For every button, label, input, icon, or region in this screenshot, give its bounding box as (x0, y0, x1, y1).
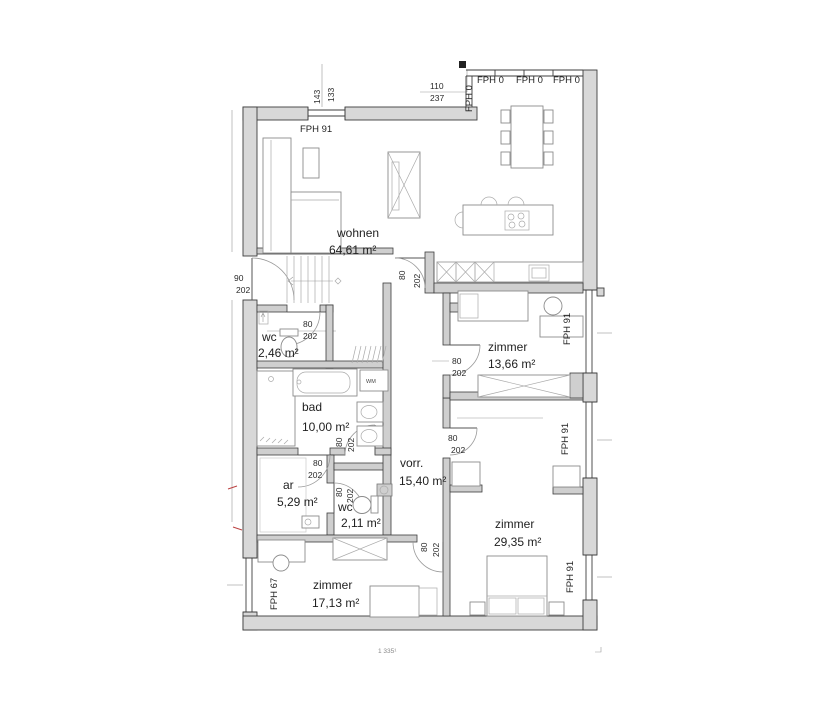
corner-marker (459, 61, 466, 68)
radiator (352, 346, 386, 363)
wall-right-upper (583, 70, 597, 290)
room-area-wc2: 2,11 m² (341, 516, 381, 530)
dresser (553, 466, 580, 487)
toilet-tank (371, 496, 378, 513)
dim-bedroom1-door-w: 80 (452, 356, 462, 366)
nightstand (470, 602, 485, 615)
toilet (353, 497, 371, 514)
plan-number: 1 335¹ (378, 648, 397, 655)
floor-plan: WM (0, 0, 835, 720)
wall-right-pier2 (583, 478, 597, 555)
dim-top-window-w: 143 (312, 90, 322, 104)
bar-stool (455, 212, 463, 228)
dresser (452, 462, 480, 486)
dim-storage-door-h: 202 (308, 470, 322, 480)
window-right-1 (583, 290, 597, 373)
kitchen-island (463, 205, 553, 235)
windows-glazing (243, 70, 597, 612)
entry-door (252, 258, 294, 300)
window-left-fph67 (243, 558, 257, 612)
dim-corner-glass-w: 110 (430, 81, 444, 91)
chair (544, 152, 553, 165)
chair (544, 110, 553, 123)
chair (501, 131, 510, 144)
room-name-ar: ar (283, 478, 294, 492)
toilet-tank (280, 329, 298, 336)
window-label-fph0-1: FPH 0 (477, 75, 504, 86)
room-area-zimmer1: 13,66 m² (488, 357, 535, 371)
dim-wc2-door-h: 202 (345, 489, 355, 503)
dim-storage-door-w: 80 (313, 458, 323, 468)
wall-bottom (243, 616, 597, 630)
bar-stool (508, 197, 524, 205)
room-name-zimmer3: zimmer (313, 578, 352, 592)
dim-bedroom3-door-w: 80 (419, 542, 429, 552)
wall-top-mid (345, 107, 477, 120)
room-name-wc1: wc (261, 330, 277, 344)
bar-stool (481, 197, 497, 205)
dim-bedroom2-door-w: 80 (448, 433, 458, 443)
bed-single (370, 586, 419, 617)
room-area-wohnen: 64,61 m² (329, 243, 376, 257)
pillow (419, 588, 437, 615)
wall-right-lower (583, 600, 597, 630)
room-area-vorr: 15,40 m² (399, 474, 446, 488)
dim-entry-door-w: 90 (234, 273, 244, 283)
window-label-right-3: FPH 91 (565, 561, 576, 593)
wall-right-pier1 (583, 373, 597, 402)
sofa (263, 138, 291, 253)
room-area-zimmer2: 29,35 m² (494, 535, 541, 549)
window-label-top: FPH 91 (300, 124, 332, 135)
window-label-left: FPH 67 (269, 578, 280, 610)
small-fixture (302, 516, 319, 528)
room-area-wc1: 2,46 m² (258, 346, 299, 360)
dim-living-door-h: 202 (412, 274, 422, 288)
dim-corner-glass-h: 237 (430, 93, 444, 103)
window-label-right-2: FPH 91 (560, 423, 571, 455)
room-name-wohnen: wohnen (336, 226, 379, 240)
room-name-zimmer2: zimmer (495, 517, 534, 531)
wall-left-mid (243, 300, 257, 558)
bed-double (487, 556, 547, 616)
dim-wc1-door-w: 80 (303, 319, 313, 329)
fixtures-bath: WM (257, 369, 388, 446)
window-right-2 (583, 402, 597, 478)
wall-right-bump (597, 288, 604, 296)
window-top-fph91 (308, 107, 345, 120)
chair-round (273, 555, 289, 571)
nightstand (549, 602, 564, 615)
window-label-fph0-2: FPH 0 (516, 75, 543, 86)
dining-table (511, 106, 543, 168)
dim-bedroom2-door-h: 202 (451, 445, 465, 455)
window-label-fph0-rot: FPH 0 (464, 85, 475, 112)
dim-bath-door-w: 80 (334, 437, 344, 447)
entry-wardrobe (287, 256, 341, 303)
dim-living-door-w: 80 (397, 270, 407, 280)
room-name-zimmer1: zimmer (488, 340, 527, 354)
wall-left-upper (243, 107, 257, 256)
chair (501, 110, 510, 123)
window-label-fph0-3: FPH 0 (553, 75, 580, 86)
window-right-3 (583, 555, 597, 600)
vent-shaft (259, 311, 268, 324)
room-area-bad: 10,00 m² (302, 420, 349, 434)
bed-single (458, 291, 528, 321)
dim-wc2-door-w: 80 (334, 487, 344, 497)
dim-entry-door-h: 202 (236, 285, 250, 295)
bathtub (293, 369, 357, 396)
side-table (303, 148, 319, 178)
chair (544, 131, 553, 144)
room-name-vorr: vorr. (400, 456, 423, 470)
dim-bedroom1-door-h: 202 (452, 368, 466, 378)
room-area-ar: 5,29 m² (277, 495, 318, 509)
room-name-bad: bad (302, 400, 322, 414)
dim-wc1-door-h: 202 (303, 331, 317, 341)
dim-bath-door-h: 202 (346, 438, 356, 452)
window-label-right-1: FPH 91 (562, 313, 573, 345)
shower (257, 371, 295, 446)
room-area-zimmer3: 17,13 m² (312, 596, 359, 610)
dim-top-window-h: 133 (326, 88, 336, 102)
chair-round (544, 297, 562, 315)
washing-machine-label: WM (366, 379, 376, 385)
dim-bedroom3-door-h: 202 (431, 543, 441, 557)
chair (501, 152, 510, 165)
